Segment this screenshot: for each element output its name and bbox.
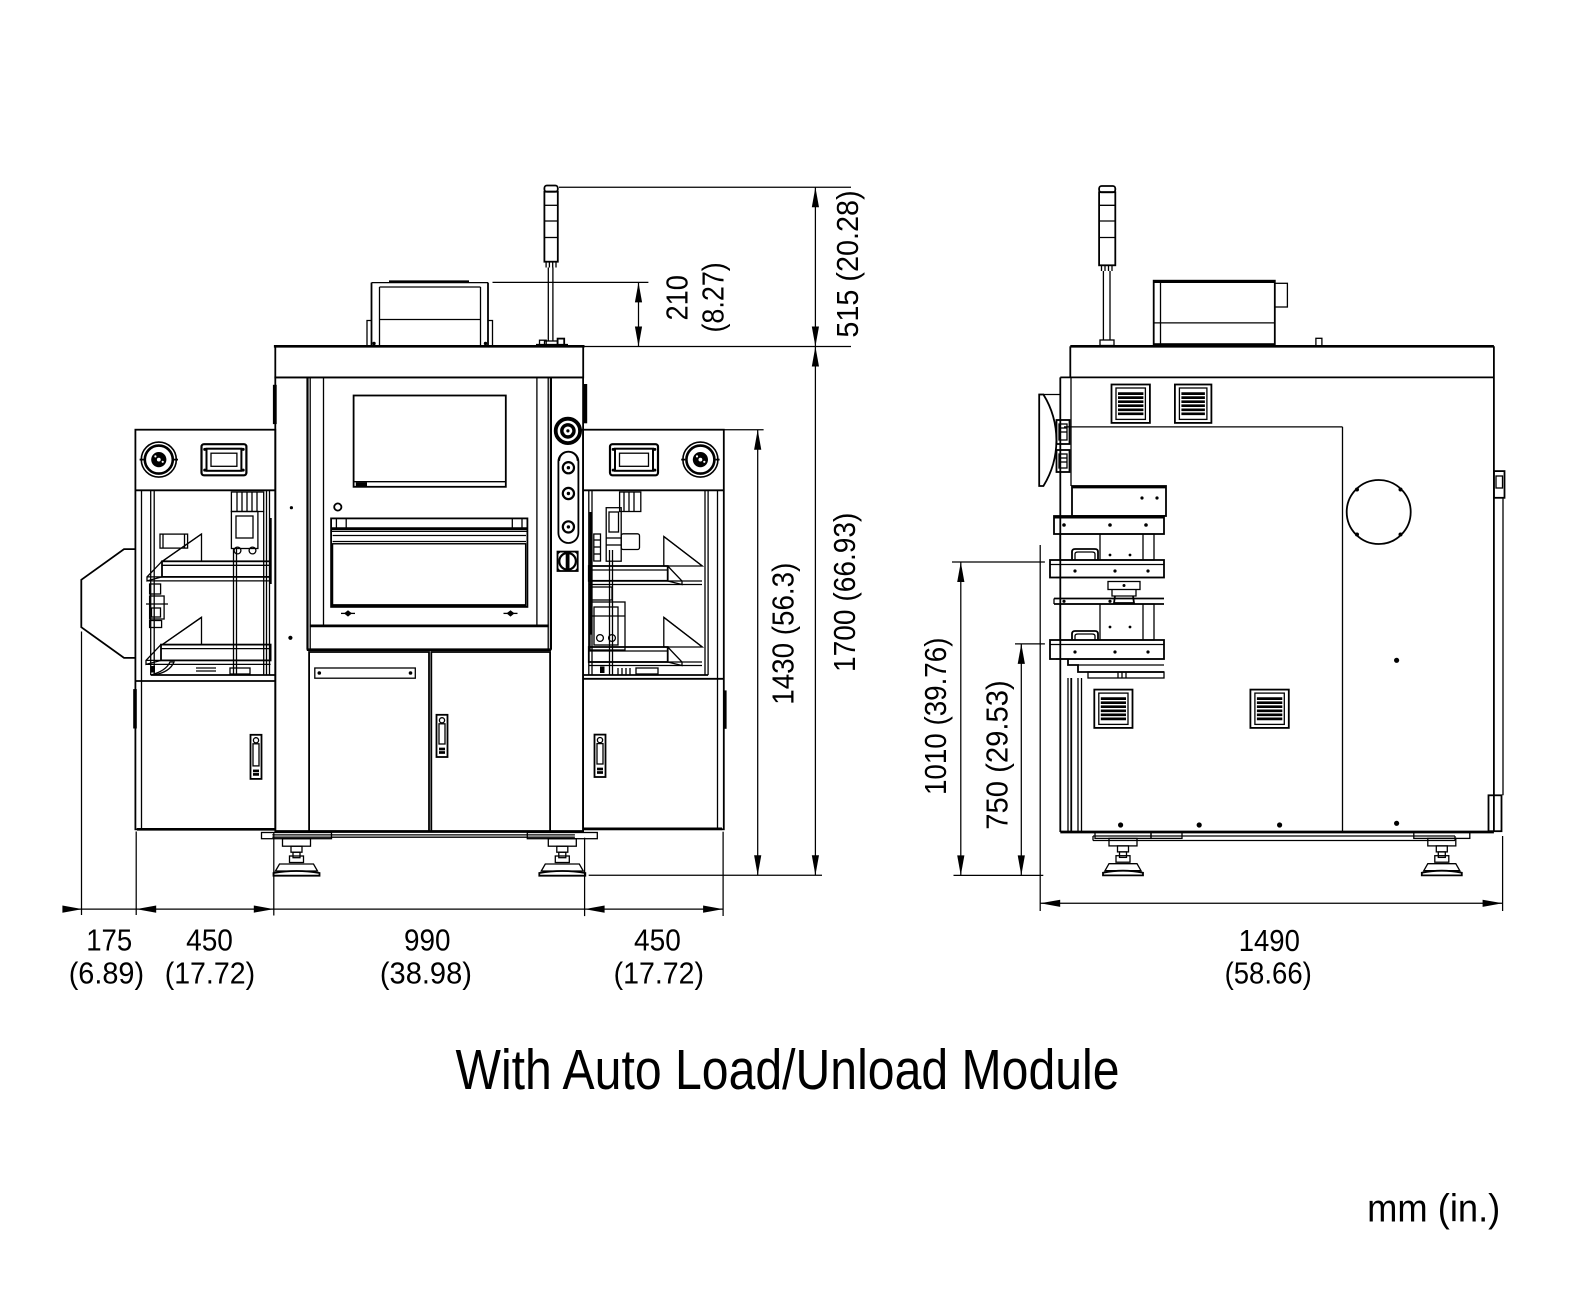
svg-text:1700 (66.93): 1700 (66.93) — [827, 513, 862, 672]
svg-text:(58.66): (58.66) — [1225, 955, 1312, 990]
svg-text:(8.27): (8.27) — [696, 262, 731, 332]
svg-text:With Auto Load/Unload Module: With Auto Load/Unload Module — [456, 1038, 1120, 1102]
svg-text:175: 175 — [86, 923, 132, 958]
svg-text:990: 990 — [404, 923, 451, 958]
svg-text:1010 (39.76): 1010 (39.76) — [918, 638, 953, 796]
svg-text:1430 (56.3): 1430 (56.3) — [766, 563, 801, 705]
svg-text:1490: 1490 — [1239, 923, 1300, 958]
svg-text:450: 450 — [186, 923, 233, 958]
svg-text:515 (20.28): 515 (20.28) — [830, 190, 865, 337]
svg-text:750 (29.53): 750 (29.53) — [980, 680, 1015, 830]
svg-text:(17.72): (17.72) — [165, 955, 255, 990]
svg-text:450: 450 — [634, 923, 681, 958]
svg-text:(6.89): (6.89) — [69, 955, 144, 990]
svg-text:(17.72): (17.72) — [614, 955, 704, 990]
svg-text:(38.98): (38.98) — [380, 955, 472, 990]
svg-text:mm (in.): mm (in.) — [1367, 1188, 1500, 1231]
svg-text:210: 210 — [660, 275, 695, 320]
